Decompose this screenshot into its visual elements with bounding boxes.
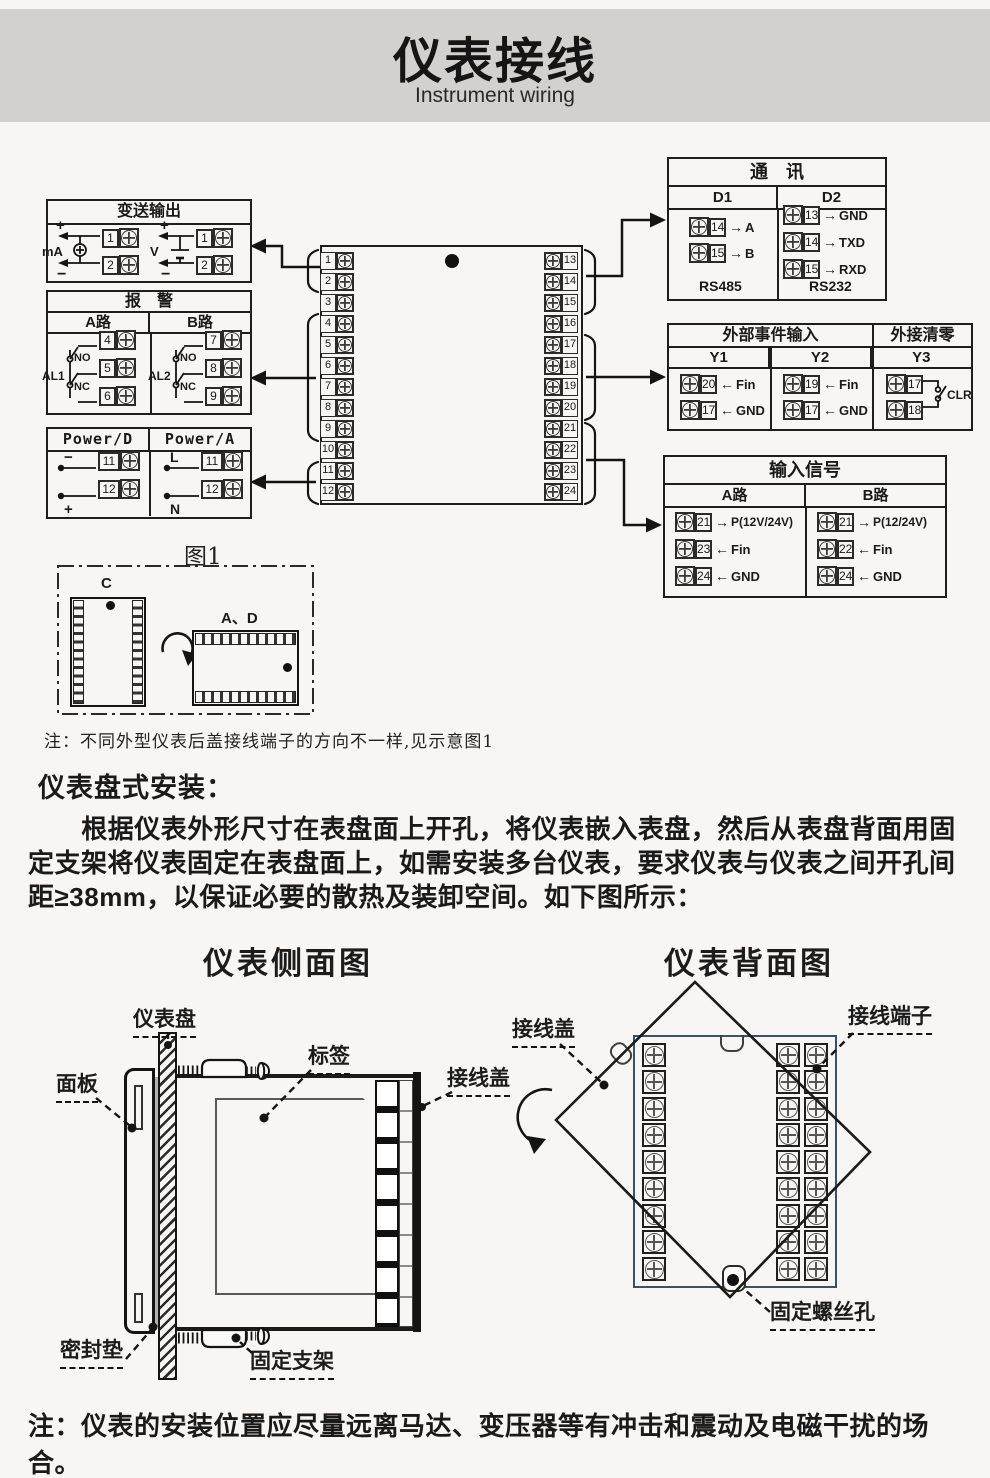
bottom-note: 注：仪表的安装位置应尽量远离马达、变压器等有冲击和震动及电磁干扰的场合。 [28,1406,978,1478]
terminal-row: 14 → A [689,217,754,237]
screw-terminal-icon [783,232,803,252]
screw-terminal-icon [776,1177,800,1201]
screw-terminal-icon [642,1177,666,1201]
panel-wall [158,1032,177,1380]
terminal-row: 15 → RXD [783,259,866,279]
terminal-strip [73,600,84,704]
divider [149,452,151,516]
label-bracket: 固定支架 [250,1345,334,1380]
panel-slot [134,1293,143,1323]
screw-terminal-icon [642,1204,666,1228]
screw-terminal-icon [116,330,136,350]
screw-terminal-icon [689,243,709,263]
case-c-label: C [101,575,112,592]
instrument-body-top [177,1074,418,1078]
rs485-caption: RS485 [699,278,742,294]
screw-terminal-icon [544,357,562,375]
terminal-row: 15 → B [689,243,754,263]
clear-title: 外接清零 [872,325,971,346]
screw-terminal-icon [783,259,803,279]
y2-label: Y2 [768,348,869,367]
screw-terminal-icon [804,1257,828,1281]
index-dot [106,601,115,610]
index-dot [283,663,292,672]
screw-terminal-icon [120,451,140,471]
label-tag: 标签 [308,1040,350,1075]
screw-terminal-icon [336,378,354,396]
terminal-row: 14 → TXD [783,232,865,252]
terminal-strip [375,1080,399,1327]
y3-label: Y3 [870,348,971,367]
divider [805,508,807,597]
screw-terminal-icon [783,400,803,420]
terminal-row: 13 → GND [783,205,868,225]
terminal-strip-side [399,1080,413,1327]
panel-slot [134,1085,143,1130]
terminal-row: 1 [102,228,139,248]
screw-terminal-icon [544,273,562,291]
screw-terminal-icon [222,330,242,350]
screw-terminal-icon [544,315,562,333]
box-title: 输入信号 [665,457,945,485]
divider [777,210,779,300]
alarm-box: 报 警 A路 B路 4 5 6 7 8 9 [46,290,252,415]
section-heading: 仪表盘式安装： [38,766,234,805]
screw-terminal-icon [222,386,242,406]
screw-terminal-icon [336,441,354,459]
screw-terminal-icon [336,483,354,501]
left-terminal-column: 1 2 3 4 5 6 7 8 9 10 11 12 [320,251,354,501]
screw-terminal-icon [544,399,562,417]
screw-terminal-icon [817,566,837,586]
screw-terminal-icon [336,357,354,375]
label-panel-board: 仪表盘 [133,1003,196,1038]
terminal-strip [132,600,143,704]
event-title: 外部事件输入 [669,325,872,346]
label-wiring-cover-back: 接线盖 [512,1013,575,1048]
screw-terminal-icon [776,1070,800,1094]
screw-terminal-icon [223,451,243,471]
terminal-row: 19 ← Fin [783,374,859,394]
channel-b-label: B路 [804,485,945,506]
screw-terminal-icon [336,315,354,333]
rs232-caption: RS232 [809,278,852,294]
screw-terminal-icon [776,1043,800,1067]
label-seal-gasket: 密封垫 [60,1334,123,1369]
right-terminal-column: 13 14 15 16 17 18 19 20 21 22 23 24 [544,251,578,501]
back-view-title: 仪表背面图 [664,938,834,983]
screw-terminal-icon [544,420,562,438]
terminal-row: 17 ← GND [783,400,868,420]
screw-terminal-icon [544,294,562,312]
page-subtitle: Instrument wiring [0,84,990,108]
screw-terminal-icon [642,1070,666,1094]
figure1-note: 注：不同外型仪表后盖接线端子的方向不一样,见示意图1 [44,727,494,752]
screw-terminal-icon [675,512,695,532]
terminal-row: 5 [99,358,136,378]
terminal-row: 12 [201,479,243,499]
screw-terminal-icon [642,1230,666,1254]
label-area [215,1098,377,1295]
screw-terminal-icon [675,539,695,559]
terminal-row: 2 [196,255,233,275]
label-front-panel: 面板 [56,1068,98,1103]
terminal-row: 20 ← Fin [680,374,756,394]
box-title: 通 讯 [669,159,885,187]
terminal-row: 6 [99,386,136,406]
screw-terminal-icon [544,378,562,396]
terminal-row: 4 [99,330,136,350]
screw-terminal-icon [675,566,695,586]
label-screw-hole: 固定螺丝孔 [770,1296,875,1331]
screw-terminal-icon [544,483,562,501]
terminal-row: 21 → P(12V/24V) [675,512,793,532]
terminal-strip [195,691,296,703]
terminal-row: 12 [98,479,140,499]
screw-terminal-icon [222,358,242,378]
terminal-row: 23 ← Fin [675,539,751,559]
page-title: 仪表接线 [0,22,990,93]
rear-right-column-2 [804,1043,828,1281]
terminal-row: 1 [196,228,233,248]
install-paragraph: 根据仪表外形尺寸在表盘面上开孔，将仪表嵌入表盘，然后从表盘背面用固定支架将仪表固… [28,812,966,914]
manual-page: 仪表接线 Instrument wiring [0,0,990,1478]
divider [770,348,772,429]
communication-box: 通 讯 D1 D2 14 → A 15 → B RS485 13 → GND 1… [667,157,887,301]
screw-terminal-icon [776,1257,800,1281]
screw-terminal-icon [776,1204,800,1228]
screw-terminal-icon [804,1123,828,1147]
screw-terminal-icon [544,336,562,354]
screw-terminal-icon [804,1204,828,1228]
screw-terminal-icon [776,1230,800,1254]
screw-terminal-icon [776,1150,800,1174]
screw-terminal-icon [642,1257,666,1281]
screw-terminal-icon [804,1043,828,1067]
terminal-row: 22 ← Fin [817,539,893,559]
box-title: 变送输出 [48,201,250,225]
screw-terminal-icon [642,1043,666,1067]
case-c-outline [70,597,146,707]
screw-terminal-icon [336,462,354,480]
label-terminal: 接线端子 [848,1000,932,1035]
screw-terminal-icon [116,358,136,378]
screw-terminal-icon [336,252,354,270]
cover-hook [607,1039,636,1068]
label-wiring-cover-side: 接线盖 [447,1062,510,1097]
d1-label: D1 [669,187,776,208]
event-input-box: 外部事件输入 外接清零 Y1 Y2 Y3 20 ← Fin 17 ← GND 1… [667,323,973,431]
screw-terminal-icon [642,1123,666,1147]
side-view-title: 仪表侧面图 [203,938,373,983]
power-box: Power/D Power/A 11 12 11 12 [46,427,252,519]
rear-right-column-1 [776,1043,800,1281]
screw-terminal-icon [336,336,354,354]
screw-terminal-icon [804,1070,828,1094]
divider [150,334,152,414]
terminal-row: 2 [102,255,139,275]
screw-terminal-icon [336,273,354,291]
terminal-row: 17 [886,374,923,394]
channel-a-label: A路 [665,485,804,506]
screw-terminal-icon [544,441,562,459]
rear-terminal-block [633,1035,837,1288]
screw-terminal-icon [119,255,139,275]
screw-terminal-icon [213,255,233,275]
terminal-row: 21 → P(12/24V) [817,512,927,532]
screw-terminal-icon [783,374,803,394]
terminal-row: 11 [201,451,243,471]
divider [872,325,874,429]
cover-notch [720,1035,744,1052]
terminal-row: 18 [886,400,923,420]
instrument-body-bottom [177,1327,418,1331]
transmitter-output-box: 变送输出 1 2 1 2 [46,199,252,283]
screw-terminal-icon [642,1097,666,1121]
power-d-label: Power/D [48,429,148,450]
figure1-caption: 图1 [184,537,222,571]
input-columns: A路 B路 [665,485,945,508]
input-signal-box: 输入信号 A路 B路 21 → P(12V/24V) 23 ← Fin 24 ←… [663,455,947,598]
event-columns: Y1 Y2 Y3 [669,348,971,369]
screw-terminal-icon [544,252,562,270]
screw-terminal-icon [213,228,233,248]
screw-terminal-icon [544,462,562,480]
screw-terminal-icon [223,479,243,499]
screw-terminal-icon [804,1230,828,1254]
case-ad-label: A、D [221,607,258,628]
screw-terminal-icon [680,400,700,420]
screw-terminal-icon [120,479,140,499]
terminal-block: 1 2 3 4 5 6 7 8 9 10 11 12 13 14 15 16 1… [320,245,583,505]
screw-terminal-icon [680,374,700,394]
screw-terminal-icon [804,1097,828,1121]
index-dot [445,254,459,268]
screw-terminal-icon [642,1150,666,1174]
terminal-row: 24 ← GND [675,566,760,586]
terminal-row: 24 ← GND [817,566,902,586]
screw-terminal-icon [886,374,906,394]
terminal-row: 9 [205,386,242,406]
screw-terminal-icon [817,539,837,559]
screw-hole-dot [727,1274,739,1286]
screw-terminal-icon [336,420,354,438]
screw-terminal-icon [804,1177,828,1201]
terminal-strip [195,633,296,645]
power-a-label: Power/A [148,429,250,450]
box-title: 报 警 [48,292,250,313]
screw-terminal-icon [776,1097,800,1121]
terminal-row: 17 ← GND [680,400,765,420]
screw-terminal-icon [336,399,354,417]
screw-terminal-icon [886,400,906,420]
terminal-row: 8 [205,358,242,378]
terminal-row: 11 [98,451,140,471]
wiring-cover-bar [413,1072,421,1332]
screw-terminal-icon [336,294,354,312]
screw-terminal-icon [817,512,837,532]
screw-terminal-icon [776,1123,800,1147]
screw-terminal-icon [804,1150,828,1174]
terminal-row: 7 [205,330,242,350]
rear-left-column [642,1043,666,1281]
screw-terminal-icon [783,205,803,225]
screw-terminal-icon [119,228,139,248]
screw-terminal-icon [116,386,136,406]
power-columns: Power/D Power/A [48,429,250,452]
y1-label: Y1 [669,348,768,367]
screw-terminal-icon [689,217,709,237]
